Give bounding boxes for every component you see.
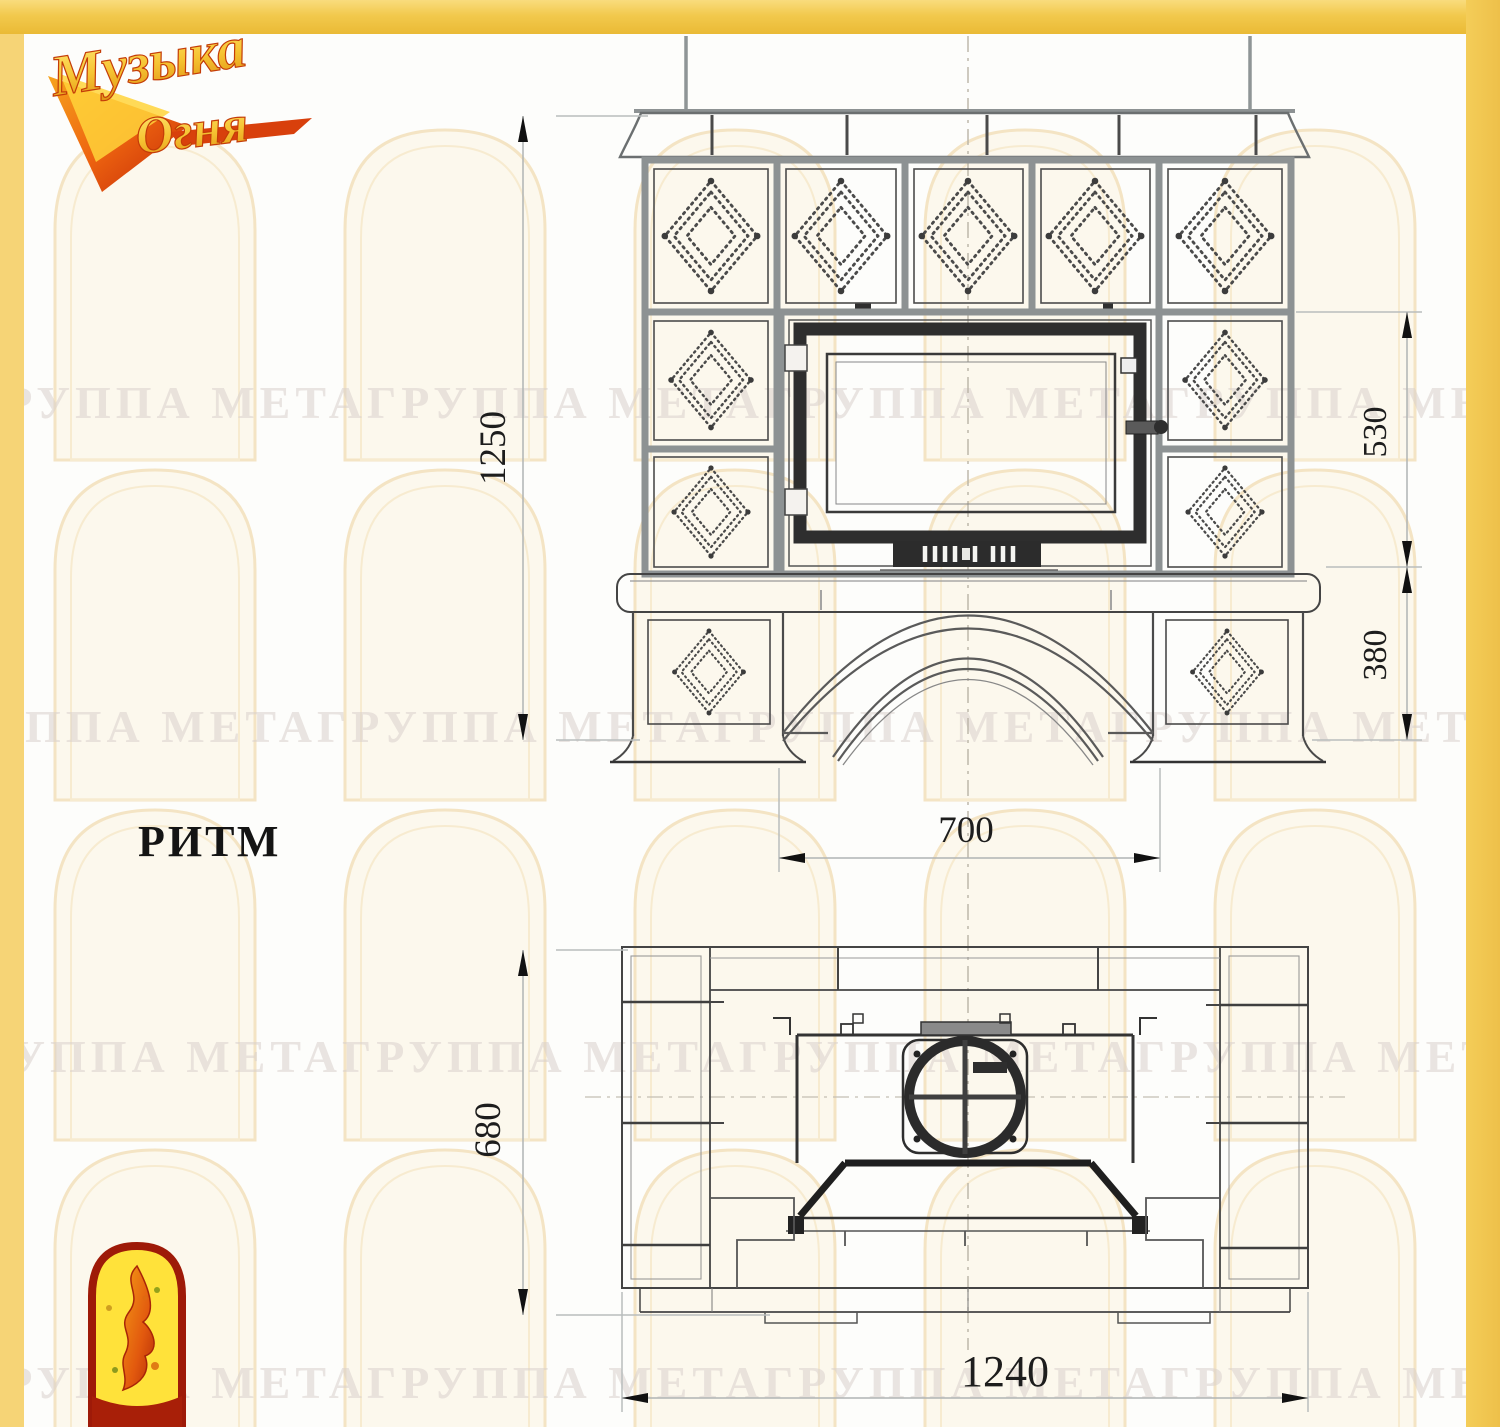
dim-overall-width-label: 1240	[961, 1347, 1049, 1396]
dimension-380: 380	[1312, 567, 1422, 740]
door-handle	[1126, 420, 1168, 434]
door-frame	[800, 329, 1140, 537]
fireplace-technical-drawing: 1250 530 380 700	[0, 0, 1500, 1427]
plan-right-wall	[1206, 947, 1308, 1288]
door-hinge-bottom	[785, 489, 807, 515]
brand-logo: Музыка Огня	[20, 4, 330, 204]
brand-emblem	[85, 1238, 190, 1427]
firebox-door	[781, 312, 1168, 574]
dimension-530: 530	[1296, 312, 1422, 567]
door-inner-frame	[827, 354, 1115, 512]
page-background: ГРУППА МЕТАГРУППА МЕТАГРУППА МЕТАГРУППА …	[0, 0, 1500, 1427]
dim-opening-width-label: 700	[938, 810, 994, 851]
door-latch	[1121, 358, 1137, 373]
plan-top-wall	[710, 947, 1220, 990]
dim-firebox-height-label: 530	[1357, 407, 1394, 458]
frame-border-right	[1466, 0, 1500, 1427]
right-leg	[1130, 612, 1326, 762]
logo-text-line1: Музыка	[45, 14, 250, 109]
vent-grille	[880, 541, 1058, 570]
dimension-1240: 1240	[622, 1292, 1308, 1412]
plan-left-wall	[622, 947, 724, 1288]
frame-border-left	[0, 34, 24, 1427]
dimension-700: 700	[779, 768, 1160, 872]
dim-base-height-label: 380	[1357, 630, 1394, 681]
model-label: РИТМ	[138, 816, 281, 867]
plan-view-drawing	[622, 947, 1308, 1323]
hearth-front	[640, 1288, 1290, 1323]
logo-text-line2: Огня	[133, 96, 252, 166]
dimension-1250: 1250	[473, 116, 648, 740]
door-hinge-top	[785, 345, 807, 371]
dim-overall-height-label: 1250	[473, 411, 514, 485]
cornice	[620, 111, 1309, 157]
flue-collar	[903, 1040, 1027, 1154]
dimension-680: 680	[468, 950, 770, 1315]
door-glass	[836, 362, 1106, 504]
dim-depth-label: 680	[468, 1102, 509, 1158]
